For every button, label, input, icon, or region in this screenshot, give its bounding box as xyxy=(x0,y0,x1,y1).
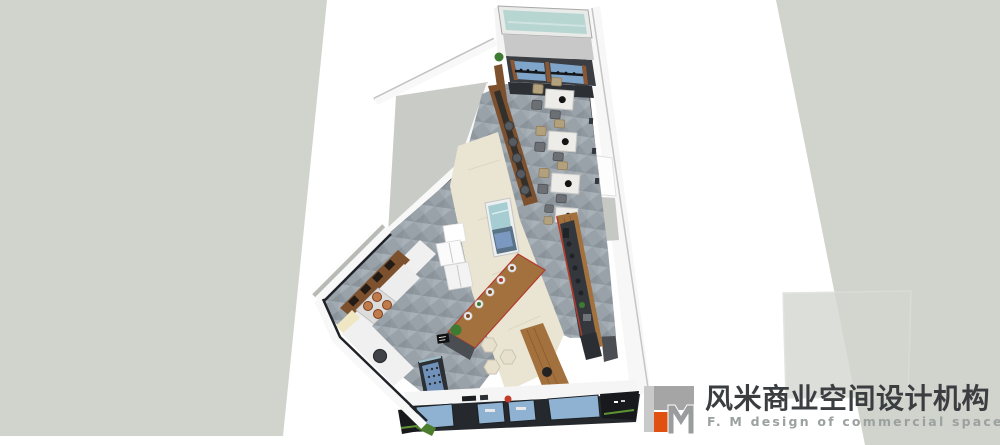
plant xyxy=(451,325,462,336)
watermark-text: 风米商业空间设计机构 F. M design of commercial spa… xyxy=(705,384,1000,429)
storefront-glass xyxy=(508,400,536,422)
red-kettle xyxy=(505,396,512,403)
storefront-glass xyxy=(477,402,505,424)
storefront-glass xyxy=(548,395,600,420)
sign-panel xyxy=(600,391,639,420)
floorplan-render xyxy=(0,0,1000,445)
ground-plane-left xyxy=(0,0,327,436)
design-render-canvas: 风米商业空间设计机构 F. M design of commercial spa… xyxy=(0,0,1000,445)
company-name-cn: 风米商业空间设计机构 xyxy=(705,384,1000,413)
entry-awning xyxy=(503,34,594,60)
company-name-en: F. M design of commercial space xyxy=(707,414,1000,429)
plant xyxy=(579,302,585,308)
plant xyxy=(495,53,504,62)
menu-board xyxy=(437,333,450,344)
stool xyxy=(542,367,552,377)
watermark-logo: 风米商业空间设计机构 F. M design of commercial spa… xyxy=(644,384,1000,436)
cooler-glass xyxy=(488,202,511,230)
skylight-entrance xyxy=(494,6,594,60)
sink xyxy=(374,350,387,363)
fm-logo-icon xyxy=(644,384,698,436)
